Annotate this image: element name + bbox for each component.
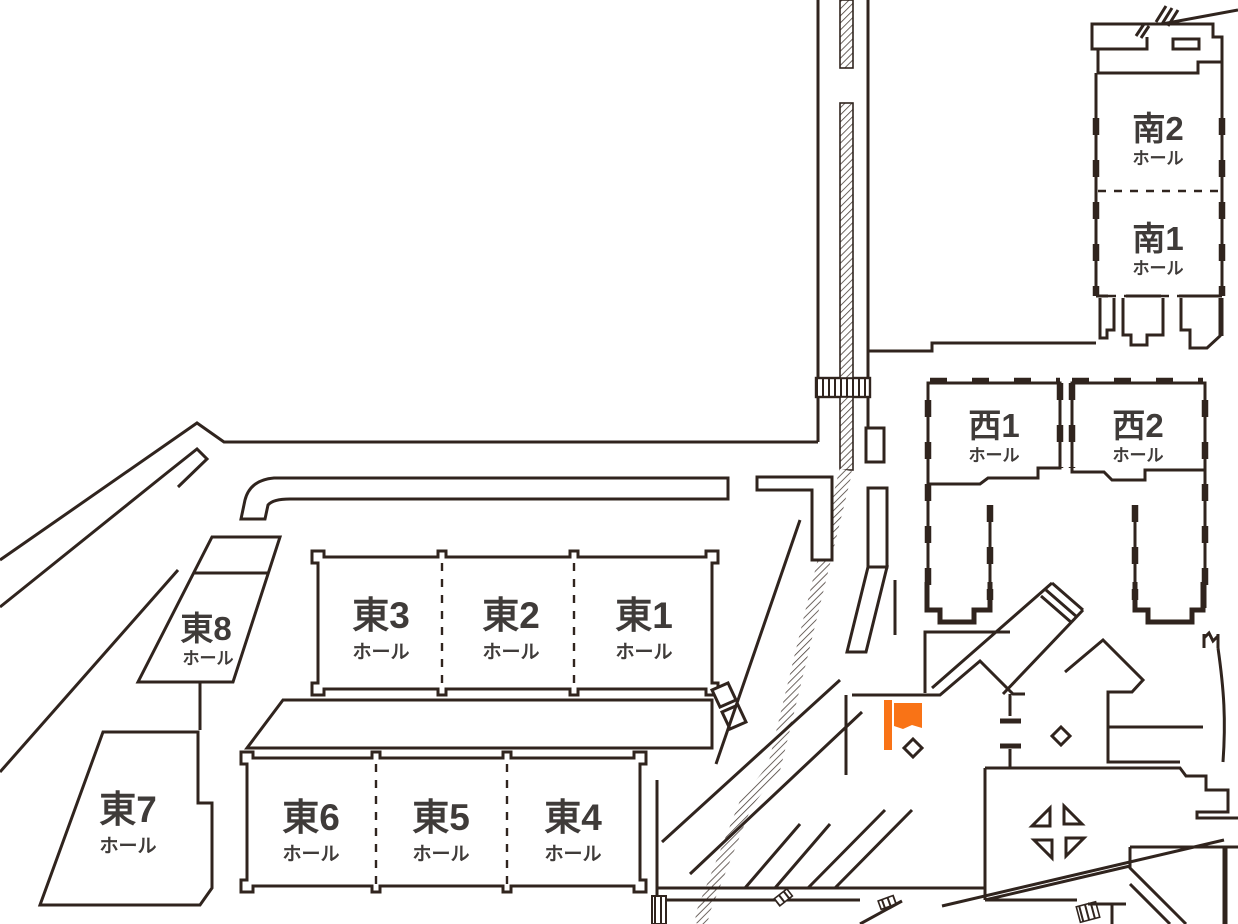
hall-south-block[interactable]: 南2 ホール 南1 ホール bbox=[1096, 62, 1222, 348]
hall-east4-sublabel: ホール bbox=[544, 844, 601, 865]
hall-east6-label[interactable]: 東6 bbox=[282, 797, 340, 838]
hall-west2-label[interactable]: 西2 bbox=[1112, 407, 1163, 444]
north-east-building bbox=[1092, 6, 1238, 73]
south-loading-bays bbox=[1100, 298, 1222, 348]
hall-west1-sublabel: ホール bbox=[969, 446, 1020, 465]
north-road bbox=[816, 0, 1096, 442]
hall-east5-sublabel: ホール bbox=[412, 844, 469, 865]
hall-east8[interactable]: 東8 ホール bbox=[138, 537, 280, 682]
south-east-building bbox=[1088, 847, 1238, 924]
hall-east7-sublabel: ホール bbox=[99, 836, 156, 857]
east-corridor bbox=[247, 700, 712, 748]
hall-south1-sublabel: ホール bbox=[1133, 259, 1184, 278]
hall-east6-sublabel: ホール bbox=[282, 844, 339, 865]
hall-east2-label[interactable]: 東2 bbox=[482, 595, 540, 636]
entrance-plaza bbox=[852, 583, 1238, 924]
hall-east123-block[interactable]: 東3 ホール 東2 ホール 東1 ホール bbox=[312, 551, 718, 695]
hall-west2-sublabel: ホール bbox=[1113, 446, 1164, 465]
stairs-icon bbox=[652, 896, 666, 924]
hall-east1-label[interactable]: 東1 bbox=[615, 595, 673, 636]
conference-building bbox=[1065, 633, 1224, 762]
hall-west1-label[interactable]: 西1 bbox=[968, 407, 1019, 444]
hall-east5-label[interactable]: 東5 bbox=[412, 797, 470, 838]
hall-south1-label[interactable]: 南1 bbox=[1132, 220, 1183, 257]
hall-east3-label[interactable]: 東3 bbox=[352, 595, 410, 636]
diamond-icon bbox=[904, 739, 922, 757]
hall-east456-block[interactable]: 東6 ホール 東5 ホール 東4 ホール bbox=[241, 752, 646, 892]
hall-west-block[interactable]: 西1 ホール 西2 ホール bbox=[927, 381, 1205, 622]
crosswalk bbox=[816, 378, 870, 397]
pinwheel-icon bbox=[1032, 806, 1084, 858]
floor-map: 南2 ホール 南1 ホール 西1 ホール 西2 ホール 東3 ホール 東2 bbox=[0, 0, 1238, 924]
hall-east8-label[interactable]: 東8 bbox=[180, 610, 231, 647]
hall-east1-sublabel: ホール bbox=[615, 642, 672, 663]
hall-south2-label[interactable]: 南2 bbox=[1132, 110, 1183, 147]
hall-east7[interactable]: 東7 ホール bbox=[40, 732, 212, 905]
hall-east3-sublabel: ホール bbox=[352, 642, 409, 663]
stairs-icon bbox=[774, 889, 792, 906]
floor-map-canvas: 南2 ホール 南1 ホール 西1 ホール 西2 ホール 東3 ホール 東2 bbox=[0, 0, 1238, 924]
hall-east8-sublabel: ホール bbox=[183, 649, 234, 668]
diamond-icon bbox=[1052, 727, 1070, 745]
hall-east7-label[interactable]: 東7 bbox=[99, 789, 157, 830]
hall-east4-label[interactable]: 東4 bbox=[544, 797, 602, 838]
hall-south2-sublabel: ホール bbox=[1133, 149, 1184, 168]
hall-east2-sublabel: ホール bbox=[482, 642, 539, 663]
